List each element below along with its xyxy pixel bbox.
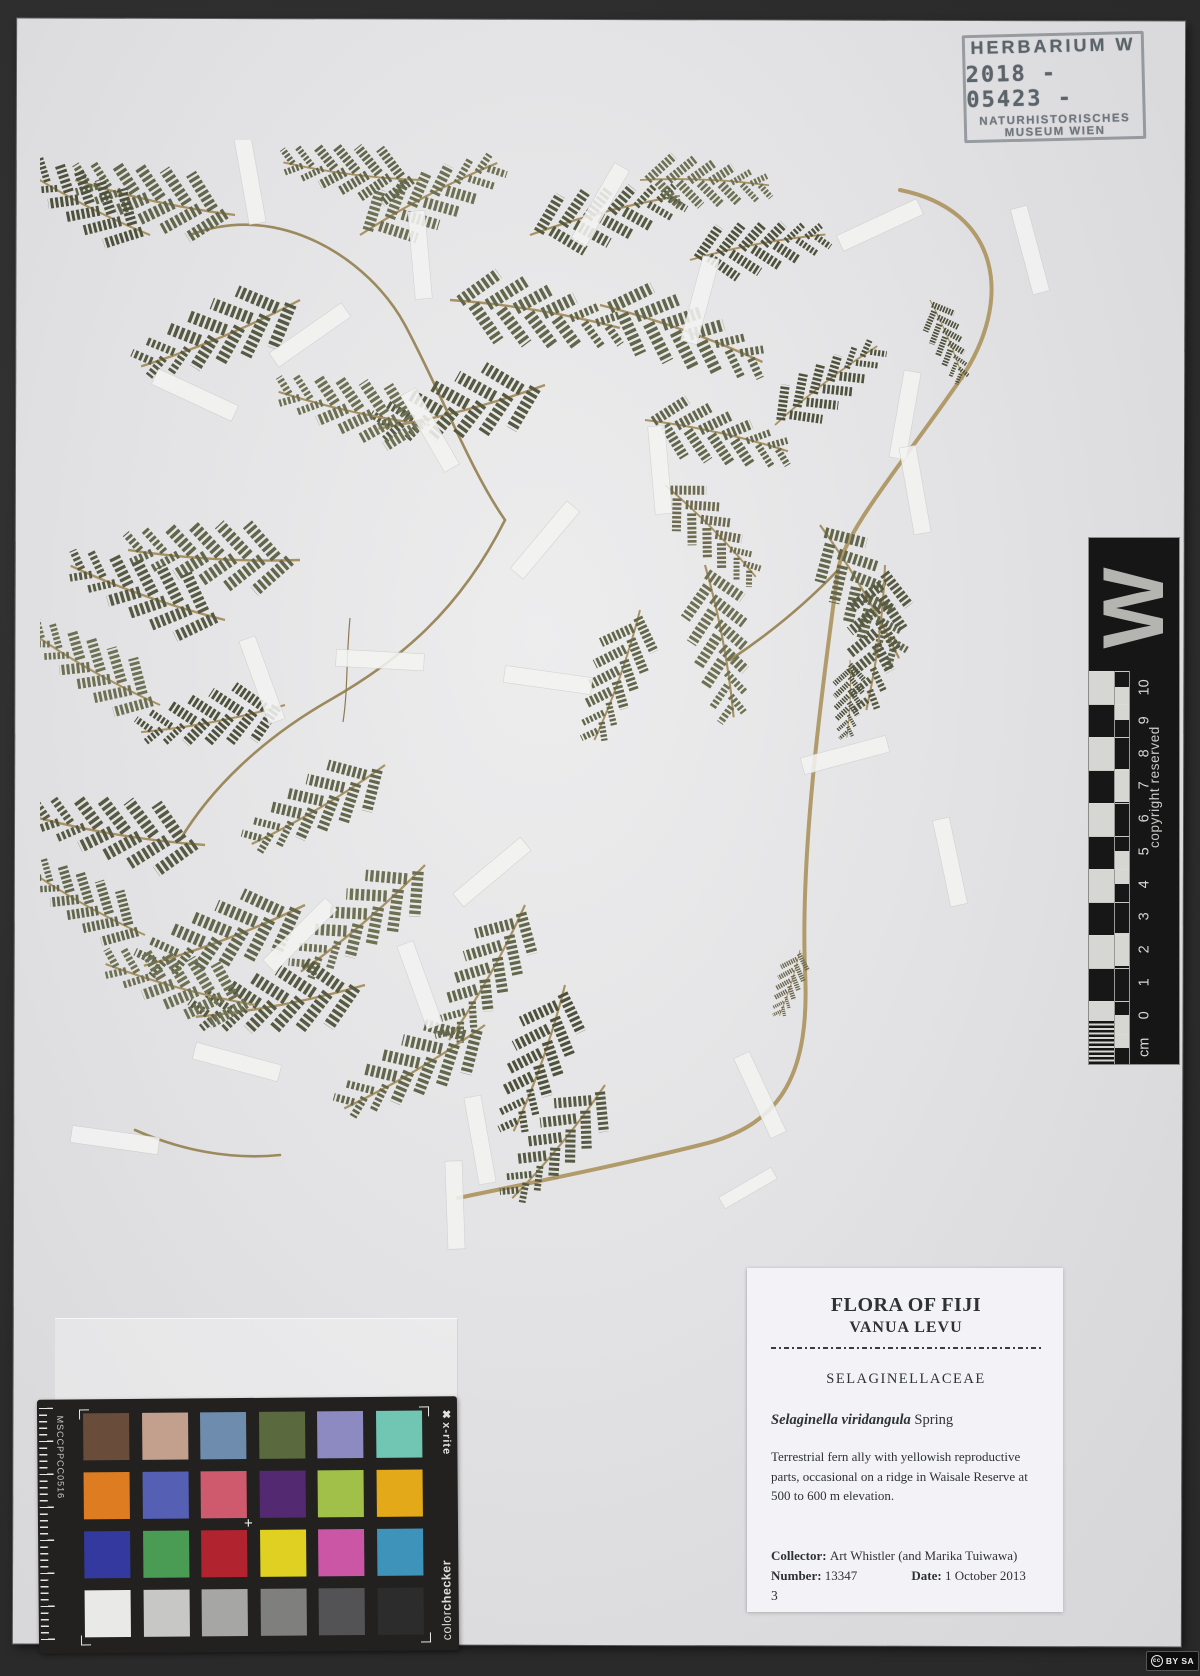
color-patch bbox=[260, 1529, 306, 1576]
label-number: Number: 13347 bbox=[771, 1566, 911, 1586]
pressed-plant-specimen bbox=[40, 140, 1060, 1280]
accession-stamp: HERBARIUM W 2018 - 05423 - NATURHISTORIS… bbox=[962, 31, 1147, 143]
color-patch bbox=[319, 1588, 365, 1635]
ruler-tick: 3 bbox=[1129, 903, 1162, 931]
ruler-tick: 10 bbox=[1129, 673, 1162, 701]
stamp-accession-number: 2018 - 05423 - bbox=[965, 59, 1142, 113]
card-corner-mark bbox=[81, 1635, 91, 1645]
scale-bar: W copyright reserved 10 9 8 7 6 5 4 3 2 … bbox=[1088, 537, 1180, 1065]
label-sheet-number: 3 bbox=[771, 1586, 1041, 1606]
ruler-checker-column-cm bbox=[1089, 671, 1115, 1064]
card-corner-mark bbox=[421, 1632, 431, 1642]
xrite-icon: ✖ bbox=[440, 1408, 452, 1422]
label-region: VANUA LEVU bbox=[771, 1319, 1041, 1337]
colorchecker-card: MSCCPPCC0516 ✖x-rite colorchecker + bbox=[37, 1396, 459, 1654]
color-patch bbox=[318, 1529, 364, 1576]
label-divider bbox=[771, 1347, 1041, 1349]
label-title: FLORA OF FIJI bbox=[771, 1294, 1041, 1317]
ruler-w-logo: W bbox=[1078, 563, 1190, 653]
color-patch bbox=[259, 1412, 305, 1459]
species-binomial: Selaginella viridangula bbox=[771, 1412, 911, 1428]
label-collector-line: Collector: Art Whistler (and Marika Tuiw… bbox=[771, 1546, 1041, 1566]
color-patch bbox=[85, 1590, 131, 1637]
color-patch bbox=[259, 1471, 305, 1518]
colorchecker-grid bbox=[83, 1410, 423, 1637]
color-patch bbox=[260, 1588, 306, 1635]
ruler-millimeter-ticks bbox=[1089, 1018, 1114, 1064]
color-patch bbox=[143, 1590, 189, 1637]
card-corner-mark bbox=[419, 1406, 429, 1416]
color-patch bbox=[201, 1530, 247, 1577]
color-patch bbox=[317, 1411, 363, 1458]
stem bbox=[190, 225, 505, 520]
ruler-tick: 4 bbox=[1129, 870, 1162, 898]
rootlet bbox=[343, 618, 350, 722]
color-patch bbox=[376, 1410, 422, 1457]
label-species-line: Selaginella viridangula Spring bbox=[771, 1412, 1041, 1429]
card-serial-number: MSCCPPCC0516 bbox=[51, 1416, 66, 1536]
stamp-institution: HERBARIUM W bbox=[970, 34, 1135, 59]
specimen-label: FLORA OF FIJI VANUA LEVU SELAGINELLACEAE… bbox=[747, 1268, 1063, 1612]
ruler-tick: 0 bbox=[1129, 1001, 1162, 1029]
color-patch bbox=[143, 1531, 189, 1578]
color-patch bbox=[376, 1469, 422, 1516]
xrite-logo: ✖x-rite bbox=[438, 1408, 454, 1518]
ruler-tick: 6 bbox=[1129, 804, 1162, 832]
label-date: Date: 1 October 2013 bbox=[911, 1566, 1025, 1586]
ruler-tick: 9 bbox=[1129, 706, 1162, 734]
card-center-crosshair: + bbox=[244, 1516, 253, 1531]
label-family: SELAGINELLACEAE bbox=[771, 1371, 1041, 1388]
species-author: Spring bbox=[911, 1412, 953, 1428]
colorchecker-wordmark: colorchecker bbox=[439, 1510, 456, 1640]
color-patch bbox=[202, 1589, 248, 1636]
label-description: Terrestrial fern ally with yellowish rep… bbox=[771, 1447, 1041, 1506]
ruler-tick: 7 bbox=[1129, 772, 1162, 800]
color-patch bbox=[142, 1413, 188, 1460]
cc-license-badge: cc BY SA bbox=[1146, 1651, 1199, 1671]
herbarium-photograph: { "stamp": { "line1": "HERBARIUM W", "li… bbox=[0, 0, 1200, 1676]
color-patch bbox=[318, 1470, 364, 1517]
stamp-museum-line2: MUSEUM WIEN bbox=[1005, 125, 1106, 139]
ruler-tick: 5 bbox=[1129, 837, 1162, 865]
label-number-date-line: Number: 13347 Date: 1 October 2013 bbox=[771, 1566, 1041, 1586]
ruler-tick: 2 bbox=[1129, 935, 1162, 963]
ruler-unit-label: cm bbox=[1129, 1034, 1162, 1062]
color-patch bbox=[84, 1472, 130, 1519]
card-sleeve-flap bbox=[55, 1318, 458, 1401]
color-patch bbox=[200, 1412, 246, 1459]
ruler-tick-labels: 10 9 8 7 6 5 4 3 2 1 0 cm bbox=[1131, 671, 1159, 1064]
stem bbox=[458, 190, 992, 1198]
color-patch bbox=[201, 1471, 247, 1518]
card-corner-mark bbox=[79, 1409, 89, 1419]
color-patch bbox=[142, 1472, 188, 1519]
color-patch bbox=[377, 1587, 423, 1634]
color-patch bbox=[83, 1413, 129, 1460]
cc-icon: cc bbox=[1151, 1655, 1163, 1667]
ruler-tick: 8 bbox=[1129, 739, 1162, 767]
color-patch bbox=[84, 1531, 130, 1578]
color-patch bbox=[377, 1528, 423, 1575]
ruler-tick: 1 bbox=[1129, 968, 1162, 996]
cc-license-text: BY SA bbox=[1166, 1656, 1194, 1666]
